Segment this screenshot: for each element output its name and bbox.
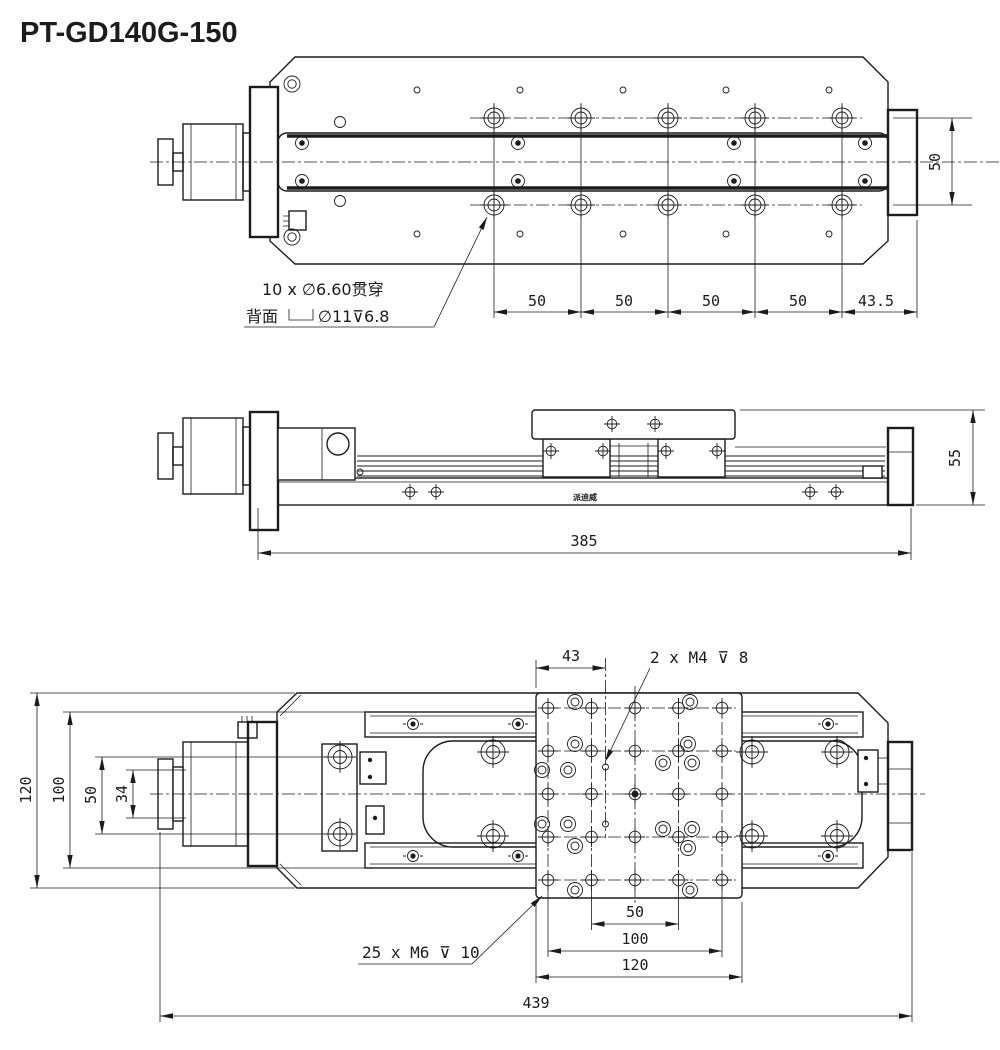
dimension-arrowhead xyxy=(536,665,549,670)
h-cb-symbol xyxy=(741,104,769,132)
dimension-arrowhead xyxy=(970,492,975,505)
dimension-arrowhead xyxy=(34,875,39,888)
sv-rail-lines xyxy=(357,456,885,476)
h-tiny-symbol xyxy=(517,87,523,93)
dimension-arrowhead xyxy=(949,192,954,205)
bv-dim-50: 50 xyxy=(82,786,100,804)
h-tiny-symbol xyxy=(414,87,420,93)
h-crossS-symbol xyxy=(428,484,444,500)
top-view xyxy=(158,57,917,264)
dimension-arrowhead xyxy=(970,410,975,423)
sv-motor-knob xyxy=(158,433,173,479)
dimension-arrowhead xyxy=(842,309,855,314)
h-scr-symbol xyxy=(859,175,872,188)
sv-slider-right xyxy=(658,439,725,477)
drawing-canvas: PT-GD140G-150 xyxy=(0,0,1000,1050)
h-tiny-symbol xyxy=(414,231,420,237)
tv-dim-lines xyxy=(494,118,952,312)
h-cb-symbol xyxy=(654,104,682,132)
dimension-arrowhead xyxy=(949,118,954,131)
h-tiny-symbol xyxy=(357,469,363,475)
h-rail-symbol xyxy=(508,719,528,730)
h-tiny-symbol xyxy=(620,231,626,237)
h-crossS-symbol xyxy=(828,484,844,500)
h-cb-symbol xyxy=(654,191,682,219)
h-pin-symbol xyxy=(368,775,372,779)
tv-end-cap xyxy=(888,110,917,215)
sv-screw-end xyxy=(863,466,882,478)
dimension-arrowhead xyxy=(130,770,135,783)
sv-motor-flange xyxy=(250,412,278,530)
h-scr-symbol xyxy=(296,175,309,188)
h-med-symbol xyxy=(335,117,346,128)
sv-table-plate xyxy=(532,410,735,439)
h-corner-symbol xyxy=(284,76,300,92)
sv-carriage xyxy=(532,410,886,478)
h-crossS-symbol xyxy=(802,484,818,500)
bv-dim-b50: 50 xyxy=(626,903,644,921)
bv-dim-total: 439 xyxy=(522,994,549,1012)
tv-dim-pitch-1: 50 xyxy=(528,292,546,310)
h-cb-symbol xyxy=(567,191,595,219)
tv-dim-pitch-3: 50 xyxy=(702,292,720,310)
bv-dim-offset: 43 xyxy=(562,647,580,665)
generated-symbols xyxy=(34,76,975,1019)
dimension-arrowhead xyxy=(494,309,507,314)
bottom-view xyxy=(158,693,912,898)
bv-sensor-body xyxy=(858,750,878,792)
h-rail-symbol xyxy=(818,719,838,730)
bv-dim-100: 100 xyxy=(50,776,68,803)
h-tiny-symbol xyxy=(826,231,832,237)
dimension-arrowhead xyxy=(742,309,755,314)
dimension-arrowhead xyxy=(479,217,487,230)
h-cb-symbol xyxy=(480,104,508,132)
dimension-arrowhead xyxy=(755,309,768,314)
h-crossS-symbol xyxy=(402,484,418,500)
dimension-arrowhead xyxy=(709,948,722,953)
tv-counterbore-glyph xyxy=(289,309,313,320)
dimension-arrowhead xyxy=(258,550,271,555)
dimension-arrowhead xyxy=(729,974,742,979)
dimension-arrowhead xyxy=(668,309,681,314)
dimension-arrowhead xyxy=(899,1013,912,1018)
h-pin-symbol xyxy=(864,756,868,760)
bv-dim-34: 34 xyxy=(113,785,131,803)
h-scr-symbol xyxy=(512,175,525,188)
dimension-arrowhead xyxy=(568,309,581,314)
h-rail-symbol xyxy=(403,719,423,730)
dimension-arrowhead xyxy=(581,309,594,314)
h-pin-symbol xyxy=(864,782,868,786)
dimension-arrowhead xyxy=(666,921,679,926)
h-tiny-symbol xyxy=(723,231,729,237)
page-title: PT-GD140G-150 xyxy=(20,17,238,49)
h-cb-symbol xyxy=(828,104,856,132)
bv-dim-b100: 100 xyxy=(621,930,648,948)
sv-motor xyxy=(158,418,250,494)
h-scr-symbol xyxy=(296,137,309,150)
bv-note-m6: 25 x M6 ⊽ 10 xyxy=(362,943,480,962)
h-scr-symbol xyxy=(728,175,741,188)
dimension-arrowhead xyxy=(536,974,549,979)
tv-dim-pitch-4: 50 xyxy=(789,292,807,310)
tv-dim-end: 43.5 xyxy=(858,292,894,310)
tv-note-line2-prefix: 背面 xyxy=(246,307,278,326)
side-view xyxy=(158,410,913,530)
h-tiny-symbol xyxy=(723,87,729,93)
h-scr-symbol xyxy=(512,137,525,150)
bv-dim-lines xyxy=(37,668,912,1016)
sv-brand-label: 派迪威 xyxy=(573,492,597,502)
dimension-lines xyxy=(30,103,985,1022)
h-cb-symbol xyxy=(567,104,595,132)
bv-dim-width: 120 xyxy=(17,776,35,803)
dimension-arrowhead xyxy=(904,309,917,314)
sv-dim-height: 55 xyxy=(946,449,964,467)
h-rail-symbol xyxy=(818,851,838,862)
h-scr-symbol xyxy=(859,137,872,150)
sv-end-cap xyxy=(888,428,913,505)
h-med-symbol xyxy=(335,196,346,207)
h-tiny-symbol xyxy=(826,87,832,93)
h-pin-symbol xyxy=(368,758,372,762)
h-cb-symbol xyxy=(741,191,769,219)
h-cb-symbol xyxy=(480,191,508,219)
labels: 50 50 50 50 43.5 50 10 x ∅6.60贯穿 背面 ∅11⊽… xyxy=(17,153,964,1012)
tv-note-line2-suffix: ∅11⊽6.8 xyxy=(318,307,389,326)
tv-connector-body xyxy=(289,211,306,230)
sv-bridge xyxy=(610,443,658,477)
dimension-arrowhead xyxy=(655,309,668,314)
h-dot-symbol xyxy=(632,791,639,798)
dimension-arrowhead xyxy=(99,757,104,770)
h-tiny-symbol xyxy=(620,87,626,93)
sv-motor-shaft xyxy=(173,447,183,465)
tv-connector-pins xyxy=(283,216,289,226)
h-pin-symbol xyxy=(373,816,377,820)
tv-dim-pitch-2: 50 xyxy=(615,292,633,310)
dimension-arrowhead xyxy=(593,665,606,670)
dimension-arrowhead xyxy=(898,550,911,555)
h-cb-symbol xyxy=(828,191,856,219)
cad-drawing: PT-GD140G-150 xyxy=(0,0,1000,1050)
tv-base-outline xyxy=(270,57,888,264)
dimension-arrowhead xyxy=(67,855,72,868)
dimension-arrowhead xyxy=(160,1013,173,1018)
sv-slider-left xyxy=(543,439,610,477)
tv-connector xyxy=(283,211,306,230)
dimension-arrowhead xyxy=(829,309,842,314)
sv-coupling-housing xyxy=(278,428,355,480)
bv-note-m4: 2 x M4 ⊽ 8 xyxy=(650,648,748,667)
h-tiny-symbol xyxy=(517,231,523,237)
bv-extension-lines xyxy=(30,660,912,1022)
dimension-arrowhead xyxy=(130,805,135,818)
dimension-arrowhead xyxy=(548,948,561,953)
sv-dim-length: 385 xyxy=(570,532,597,550)
dimension-arrowhead xyxy=(67,712,72,725)
bv-end-cap xyxy=(888,742,912,850)
h-scr-symbol xyxy=(728,137,741,150)
tv-note-line1: 10 x ∅6.60贯穿 xyxy=(262,280,384,299)
bv-bracket-a xyxy=(360,752,386,784)
tv-dim-width: 50 xyxy=(926,153,944,171)
bv-table-plate xyxy=(536,693,742,898)
h-corner-symbol xyxy=(284,229,300,245)
h-rail-symbol xyxy=(508,851,528,862)
bv-chamfer-lines xyxy=(280,695,301,885)
dimension-arrowhead xyxy=(34,693,39,706)
h-rail-symbol xyxy=(403,851,423,862)
sv-motor-body xyxy=(183,418,243,494)
bv-dim-b120: 120 xyxy=(621,956,648,974)
dimension-arrowhead xyxy=(592,921,605,926)
dimension-arrowhead xyxy=(99,821,104,834)
